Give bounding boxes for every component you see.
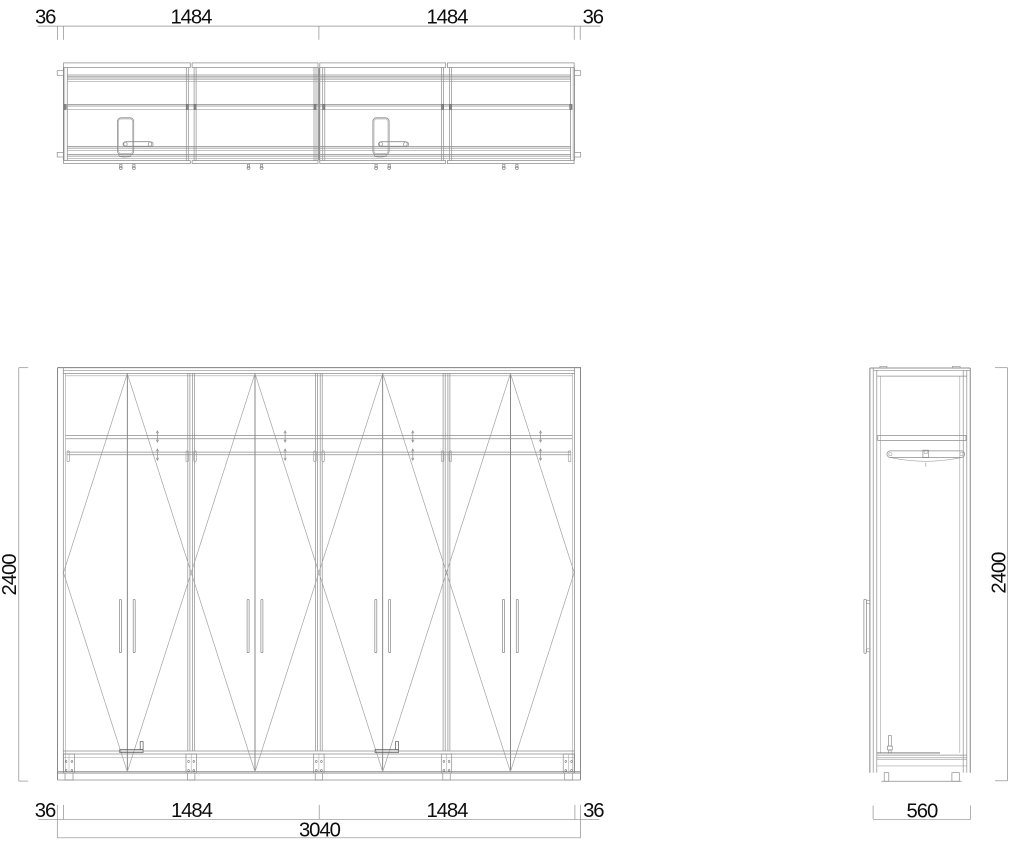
svg-text:1484: 1484 bbox=[171, 800, 213, 822]
svg-text:1484: 1484 bbox=[426, 6, 468, 28]
svg-text:560: 560 bbox=[907, 800, 938, 822]
svg-text:36: 36 bbox=[583, 800, 604, 822]
svg-text:3040: 3040 bbox=[299, 819, 341, 841]
svg-text:1484: 1484 bbox=[426, 800, 468, 822]
svg-text:36: 36 bbox=[35, 6, 56, 28]
svg-text:2400: 2400 bbox=[989, 552, 1011, 594]
svg-text:36: 36 bbox=[35, 800, 56, 822]
svg-text:36: 36 bbox=[583, 6, 604, 28]
svg-text:2400: 2400 bbox=[0, 554, 21, 596]
svg-text:1484: 1484 bbox=[170, 6, 212, 28]
